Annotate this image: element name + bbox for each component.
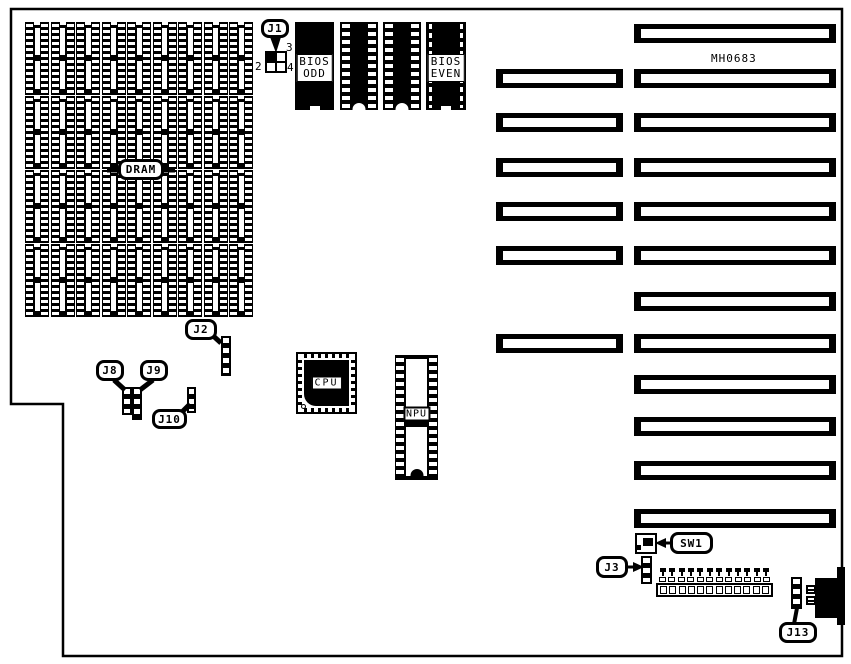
dram-chip	[127, 22, 151, 95]
socket-pins	[304, 354, 349, 358]
connector-cell	[753, 586, 760, 594]
dram-chip	[204, 96, 228, 169]
connector-pin-block	[806, 585, 816, 594]
dram-chip	[25, 244, 49, 317]
chip-notch	[410, 469, 423, 476]
connector-pin	[707, 568, 713, 576]
power-connector	[656, 568, 773, 597]
connector-cell	[697, 586, 704, 594]
connector-pin	[716, 568, 722, 576]
connector-contact	[716, 577, 723, 582]
dram-chip	[102, 244, 126, 317]
pin-number-4: 4	[287, 61, 294, 74]
dram-chip	[25, 170, 49, 243]
npu-label: NPU	[403, 407, 430, 422]
connector-pin	[735, 568, 741, 576]
socket-pins	[351, 360, 355, 406]
expansion-slot-long	[634, 202, 836, 221]
dram-chip	[178, 22, 202, 95]
model-number-label: MH0683	[711, 52, 757, 65]
jumper-pin-2	[267, 63, 275, 71]
jumper-pin-4	[277, 63, 285, 71]
expansion-slot-short	[496, 202, 623, 221]
dram-chip	[127, 170, 151, 243]
connector-contact	[659, 577, 666, 582]
dram-chip	[127, 244, 151, 317]
dram-chip-row	[25, 170, 253, 243]
connector-contact	[687, 577, 694, 582]
connector-cell	[716, 586, 723, 594]
dram-chip	[76, 170, 100, 243]
rom-chip-2	[383, 22, 421, 110]
j13-label: J13	[779, 622, 817, 643]
connector-pin	[754, 568, 760, 576]
sw1-switch-icon	[635, 533, 657, 554]
connector-contacts	[656, 577, 773, 582]
connector-contact	[725, 577, 732, 582]
dram-chip	[102, 96, 126, 169]
j2-label: J2	[185, 319, 217, 340]
dram-chip	[204, 244, 228, 317]
connector-cell	[762, 586, 769, 594]
dram-chip	[76, 22, 100, 95]
expansion-slot-long	[634, 461, 836, 480]
expansion-slot-long	[634, 334, 836, 353]
connector-cell	[669, 586, 676, 594]
dram-chip	[153, 22, 177, 95]
dram-chip	[51, 96, 75, 169]
j3-label: J3	[596, 556, 628, 578]
keyboard-connector-body	[815, 578, 839, 618]
connector-cell	[688, 586, 695, 594]
j8-label: J8	[96, 360, 124, 381]
dram-chip	[76, 96, 100, 169]
pin-ladder	[385, 24, 393, 108]
connector-contact	[697, 577, 704, 582]
socket-pins	[304, 408, 349, 412]
dram-chip	[51, 170, 75, 243]
connector-contact	[668, 577, 675, 582]
pin-ladder	[411, 24, 419, 108]
dram-chip	[51, 22, 75, 95]
expansion-slot-short	[496, 158, 623, 177]
expansion-slot-long	[634, 24, 836, 43]
expansion-slot-long	[634, 113, 836, 132]
expansion-slot-long	[634, 246, 836, 265]
j13-header	[791, 577, 802, 609]
expansion-slot-short	[496, 113, 623, 132]
dram-chip	[204, 22, 228, 95]
expansion-slot-short	[496, 69, 623, 88]
connector-pin	[679, 568, 685, 576]
j9-header	[132, 387, 142, 420]
connector-contact	[678, 577, 685, 582]
expansion-slot-long	[634, 509, 836, 528]
dram-chip	[178, 170, 202, 243]
chip-notch	[396, 103, 409, 110]
npu-socket: NPU	[395, 355, 438, 480]
connector-cell	[679, 586, 686, 594]
bios-odd-label: BIOSODD	[296, 54, 333, 82]
dram-chip	[51, 244, 75, 317]
expansion-slot-short	[496, 246, 623, 265]
pin-ladder	[368, 24, 376, 108]
dram-chip	[25, 96, 49, 169]
bios-odd-chip: BIOSODD	[295, 22, 334, 110]
expansion-slot-long	[634, 292, 836, 311]
connector-contact	[744, 577, 751, 582]
dram-chip	[204, 170, 228, 243]
dram-chip-row	[25, 244, 253, 317]
j10-label: J10	[152, 409, 187, 429]
pin-ladder	[342, 24, 350, 108]
dram-chip	[178, 96, 202, 169]
bios-even-label: BIOSEVEN	[428, 54, 465, 82]
connector-pin	[726, 568, 732, 576]
dram-chip	[178, 244, 202, 317]
j10-header	[187, 387, 196, 413]
j9-label: J9	[140, 360, 168, 381]
dram-chip	[229, 244, 253, 317]
chip-notch	[353, 103, 366, 110]
chip-notch	[441, 106, 451, 110]
connector-contact	[706, 577, 713, 582]
connector-cell	[725, 586, 732, 594]
sw1-label: SW1	[670, 532, 713, 554]
motherboard-diagram: MH0683 BIOSODD BIOSEVEN CPU	[0, 0, 851, 664]
jumper-pin-1	[267, 53, 275, 61]
pin1-dot	[301, 404, 306, 409]
expansion-slot-long	[634, 375, 836, 394]
j2-header	[221, 336, 231, 376]
connector-contact	[754, 577, 761, 582]
connector-cell	[706, 586, 713, 594]
connector-cell	[734, 586, 741, 594]
dram-chip	[153, 244, 177, 317]
connector-pin	[688, 568, 694, 576]
dram-chip	[102, 170, 126, 243]
connector-pin	[744, 568, 750, 576]
connector-cell	[743, 586, 750, 594]
connector-pin	[763, 568, 769, 576]
j1-jumper-block	[265, 51, 287, 73]
pin-number-2: 2	[255, 60, 262, 73]
pin-ladder	[429, 358, 437, 477]
j8-header	[122, 387, 132, 415]
bios-even-chip: BIOSEVEN	[426, 22, 466, 110]
connector-pins	[656, 568, 773, 576]
rom-chip-1	[340, 22, 378, 110]
connector-cell	[660, 586, 667, 594]
pin-number-3: 3	[286, 41, 293, 54]
socket-pins	[298, 360, 302, 406]
dram-chip	[76, 244, 100, 317]
connector-housing	[656, 583, 773, 597]
expansion-slot-long	[634, 69, 836, 88]
connector-contact	[763, 577, 770, 582]
expansion-slot-long	[634, 417, 836, 436]
connector-pin	[669, 568, 675, 576]
cpu-socket: CPU	[296, 352, 357, 414]
expansion-slot-short	[496, 334, 623, 353]
connector-pin	[660, 568, 666, 576]
j3-header	[641, 556, 652, 584]
jumper-pin-3	[277, 53, 285, 61]
dram-chip	[153, 170, 177, 243]
dram-chip	[229, 96, 253, 169]
dram-chip	[229, 170, 253, 243]
connector-contact	[735, 577, 742, 582]
dram-chip	[102, 22, 126, 95]
connector-pin	[697, 568, 703, 576]
dram-chip-row	[25, 22, 253, 95]
dram-chip	[229, 22, 253, 95]
chip-notch	[310, 106, 320, 110]
dram-label: DRAM	[118, 159, 164, 180]
cpu-label: CPU	[311, 377, 341, 390]
j1-label: J1	[261, 19, 289, 38]
connector-pin-block	[806, 596, 816, 605]
expansion-slot-long	[634, 158, 836, 177]
dram-chip	[25, 22, 49, 95]
